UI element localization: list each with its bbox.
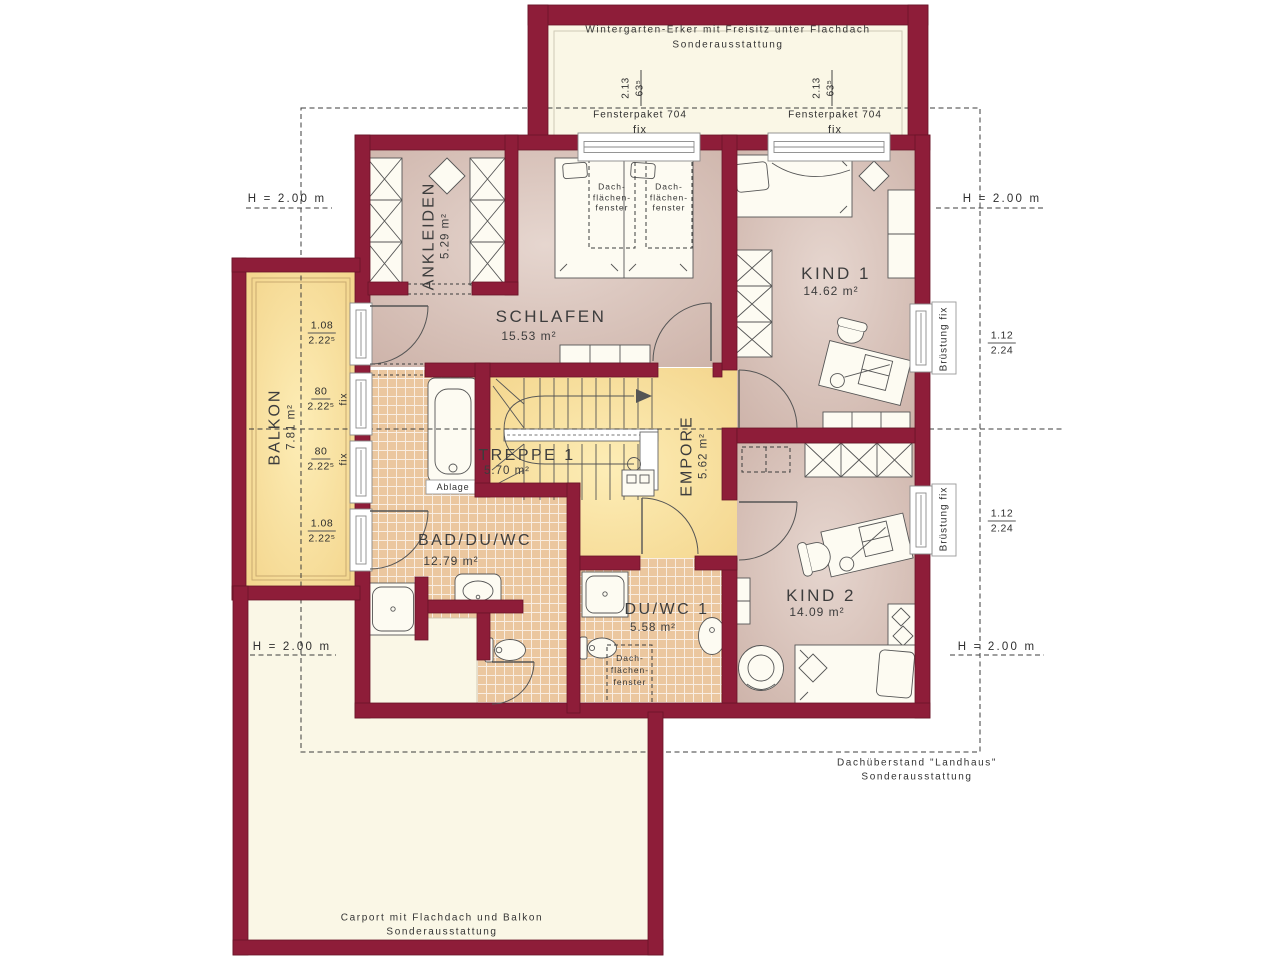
label-line: fenster [611, 676, 649, 688]
sideboard-icon [560, 345, 650, 363]
room-area-balkon: 7.81 m² [286, 389, 298, 466]
sink-icon [699, 618, 726, 655]
wintergarten-note: Wintergarten-Erker mit Freisitz unter Fl… [585, 25, 870, 36]
carport-note: Sonderausstattung [386, 927, 497, 938]
dim-bottom: 2.24 [991, 522, 1013, 535]
dim-top: 1.12 [988, 330, 1016, 344]
shower-icon [368, 583, 418, 635]
dimension-fraction: 1.08 2.22⁵ [308, 518, 336, 545]
fix-label: fix [339, 453, 350, 466]
dim-bottom: 2.24 [991, 344, 1013, 357]
bathtub-icon [426, 378, 480, 494]
label-line: fenster [593, 202, 631, 213]
dim-top: 80 [312, 446, 331, 460]
label-line: Dach- [593, 181, 631, 192]
toilet-icon [485, 638, 526, 662]
bruestung-label: Brüstung fix [939, 307, 950, 372]
height-marker: H = 2.00 m [963, 193, 1042, 205]
window-fensterpaket-icon [768, 133, 890, 161]
room-name-duwc: DU/WC 1 [624, 601, 709, 619]
ablage-label: Ablage [437, 482, 470, 492]
dim-bottom: 2.22⁵ [308, 334, 335, 347]
wintergarten-note: Sonderausstattung [672, 40, 783, 51]
room-name-kind1: KIND 1 [801, 264, 871, 284]
wardrobe-icon [732, 250, 772, 357]
bruestung-label: Brüstung fix [939, 487, 950, 552]
fensterpaket-label: Fensterpaket 704 [593, 110, 687, 121]
bed-icon [730, 155, 852, 217]
balcony-window-icon [350, 441, 372, 503]
room-name-ankleiden: ANKLEIDEN [421, 182, 439, 291]
fix-label: fix [339, 393, 350, 406]
balcony-door-icon [350, 509, 372, 571]
room-name-bad: BAD/DU/WC [418, 532, 532, 550]
label-line: flächen- [593, 192, 631, 203]
dimension-fraction: 1.12 2.24 [988, 330, 1016, 357]
bed-icon [795, 645, 918, 705]
fix-label: fix [828, 124, 842, 136]
dim-top: 1.08 [308, 320, 336, 334]
room-label-empore: EMPORE 5.62 m² [679, 415, 710, 496]
cabinet-icon [622, 470, 654, 496]
double-bed-icon [555, 158, 693, 278]
roof-window-label: Dach- flächen- fenster [611, 652, 649, 688]
dachueberstand-note: Dachüberstand "Landhaus" [837, 758, 997, 769]
wardrobe-icon [805, 443, 912, 477]
room-area-schlafen: 15.53 m² [501, 329, 556, 343]
window-dimension: 2.13 63⁵ [812, 77, 837, 98]
room-name-schlafen: SCHLAFEN [496, 307, 607, 327]
dimension-fraction: 1.08 2.22⁵ [308, 320, 336, 347]
height-marker: H = 2.00 m [248, 193, 327, 205]
dim-sill: 63⁵ [826, 77, 837, 98]
dim-bottom: 2.22⁵ [307, 460, 334, 473]
dim-bottom: 2.22⁵ [308, 532, 335, 545]
room-area-ankleiden: 5.29 m² [440, 182, 452, 291]
label-line: Dach- [650, 181, 688, 192]
dim-sill: 63⁵ [635, 77, 646, 98]
tall-cabinet-icon [888, 190, 915, 278]
dim-width: 2.13 [621, 77, 632, 98]
roof-window-label: Dach- flächen- fenster [650, 181, 688, 213]
room-name-treppe: TREPPE 1 [478, 447, 575, 465]
floor-plan: Wintergarten-Erker mit Freisitz unter Fl… [0, 0, 1280, 960]
height-marker: H = 2.00 m [958, 641, 1037, 653]
room-name-balkon: BALKON [267, 389, 285, 466]
dim-bottom: 2.22⁵ [307, 400, 334, 413]
room-label-balkon: BALKON 7.81 m² [267, 389, 298, 466]
label-line: Dach- [611, 652, 649, 664]
fix-label: fix [633, 124, 647, 136]
dimension-fraction: 80 2.22⁵ [307, 386, 334, 413]
room-area-duwc: 5.58 m² [630, 622, 676, 634]
room-area-kind2: 14.09 m² [789, 605, 844, 619]
dim-top: 1.08 [308, 518, 336, 532]
dimension-fraction: 1.12 2.24 [988, 508, 1016, 535]
round-chair-icon [739, 646, 784, 691]
room-name-empore: EMPORE [679, 415, 697, 496]
room-label-ankleiden: ANKLEIDEN 5.29 m² [421, 182, 452, 291]
dim-top: 1.12 [988, 508, 1016, 522]
roof-window-label: Dach- flächen- fenster [593, 181, 631, 213]
balcony-window-icon [350, 373, 372, 435]
label-line: fenster [650, 202, 688, 213]
side-table-icon [888, 604, 916, 648]
label-line: flächen- [650, 192, 688, 203]
window-dimension: 2.13 63⁵ [621, 77, 646, 98]
room-name-kind2: KIND 2 [786, 586, 856, 606]
dim-width: 2.13 [812, 77, 823, 98]
carport-note: Carport mit Flachdach und Balkon [341, 913, 543, 924]
fensterpaket-label: Fensterpaket 704 [788, 110, 882, 121]
shelf-icon [823, 412, 910, 428]
balcony-door-icon [350, 303, 372, 365]
plan-graphics [0, 0, 1280, 960]
room-area-treppe: 5.70 m² [484, 465, 530, 477]
dimension-fraction: 80 2.22⁵ [307, 446, 334, 473]
room-area-bad: 12.79 m² [423, 554, 478, 568]
window-fensterpaket-icon [578, 133, 700, 161]
dachueberstand-note: Sonderausstattung [861, 772, 972, 783]
label-line: flächen- [611, 664, 649, 676]
dim-top: 80 [312, 386, 331, 400]
room-area-kind1: 14.62 m² [803, 284, 858, 298]
shower-icon [582, 572, 628, 617]
room-area-empore: 5.62 m² [698, 415, 710, 496]
height-marker: H = 2.00 m [253, 641, 332, 653]
